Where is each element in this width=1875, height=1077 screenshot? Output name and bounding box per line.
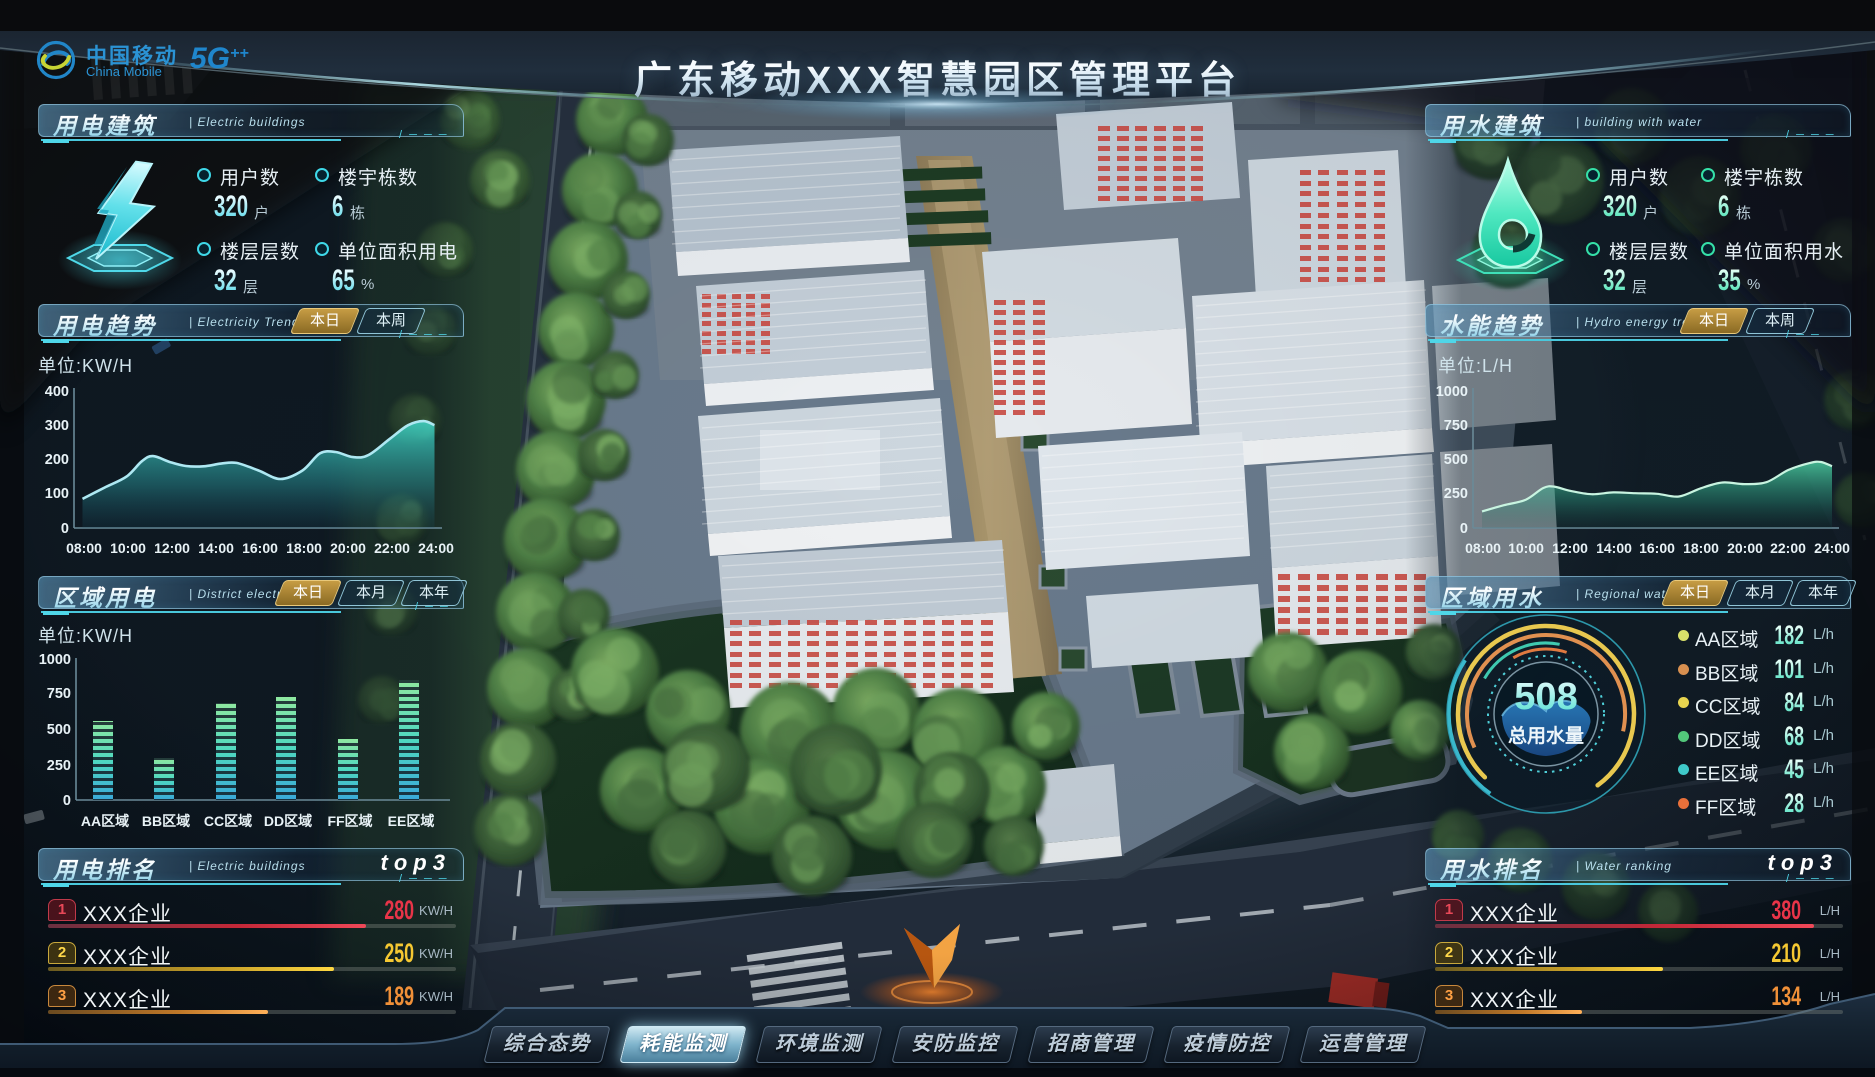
svg-text:250: 250 (1444, 486, 1468, 502)
svg-text:300: 300 (45, 418, 69, 434)
svg-text:总用水量: 总用水量 (1508, 724, 1584, 747)
svg-text:BB区域: BB区域 (142, 813, 190, 829)
svg-text:400: 400 (45, 384, 69, 400)
svg-text:DD区域: DD区域 (264, 813, 312, 829)
svg-text:750: 750 (1444, 418, 1468, 434)
svg-text:750: 750 (47, 686, 71, 702)
svg-text:AA区域: AA区域 (81, 813, 129, 829)
svg-text:12:00: 12:00 (1552, 540, 1588, 556)
svg-text:08:00: 08:00 (66, 540, 102, 556)
svg-text:16:00: 16:00 (242, 540, 278, 556)
svg-text:1000: 1000 (39, 652, 71, 668)
svg-text:1000: 1000 (1436, 384, 1468, 400)
svg-text:12:00: 12:00 (154, 540, 190, 556)
svg-text:500: 500 (1444, 452, 1468, 468)
svg-text:14:00: 14:00 (1596, 540, 1632, 556)
svg-text:10:00: 10:00 (1508, 540, 1544, 556)
svg-text:0: 0 (63, 793, 71, 809)
svg-text:0: 0 (61, 521, 69, 537)
svg-text:24:00: 24:00 (1814, 540, 1850, 556)
svg-text:100: 100 (45, 486, 69, 502)
svg-text:22:00: 22:00 (1770, 540, 1806, 556)
svg-text:EE区域: EE区域 (388, 813, 435, 829)
svg-text:16:00: 16:00 (1639, 540, 1675, 556)
svg-text:20:00: 20:00 (330, 540, 366, 556)
svg-text:10:00: 10:00 (110, 540, 146, 556)
svg-text:0: 0 (1460, 521, 1468, 537)
svg-text:22:00: 22:00 (374, 540, 410, 556)
svg-text:18:00: 18:00 (286, 540, 322, 556)
svg-text:FF区域: FF区域 (327, 813, 372, 829)
svg-text:CC区域: CC区域 (204, 813, 252, 829)
svg-text:200: 200 (45, 452, 69, 468)
svg-text:500: 500 (47, 722, 71, 738)
svg-text:508: 508 (1514, 676, 1577, 718)
svg-text:20:00: 20:00 (1727, 540, 1763, 556)
svg-text:250: 250 (47, 758, 71, 774)
svg-text:24:00: 24:00 (418, 540, 454, 556)
svg-text:14:00: 14:00 (198, 540, 234, 556)
svg-text:08:00: 08:00 (1465, 540, 1501, 556)
svg-text:18:00: 18:00 (1683, 540, 1719, 556)
